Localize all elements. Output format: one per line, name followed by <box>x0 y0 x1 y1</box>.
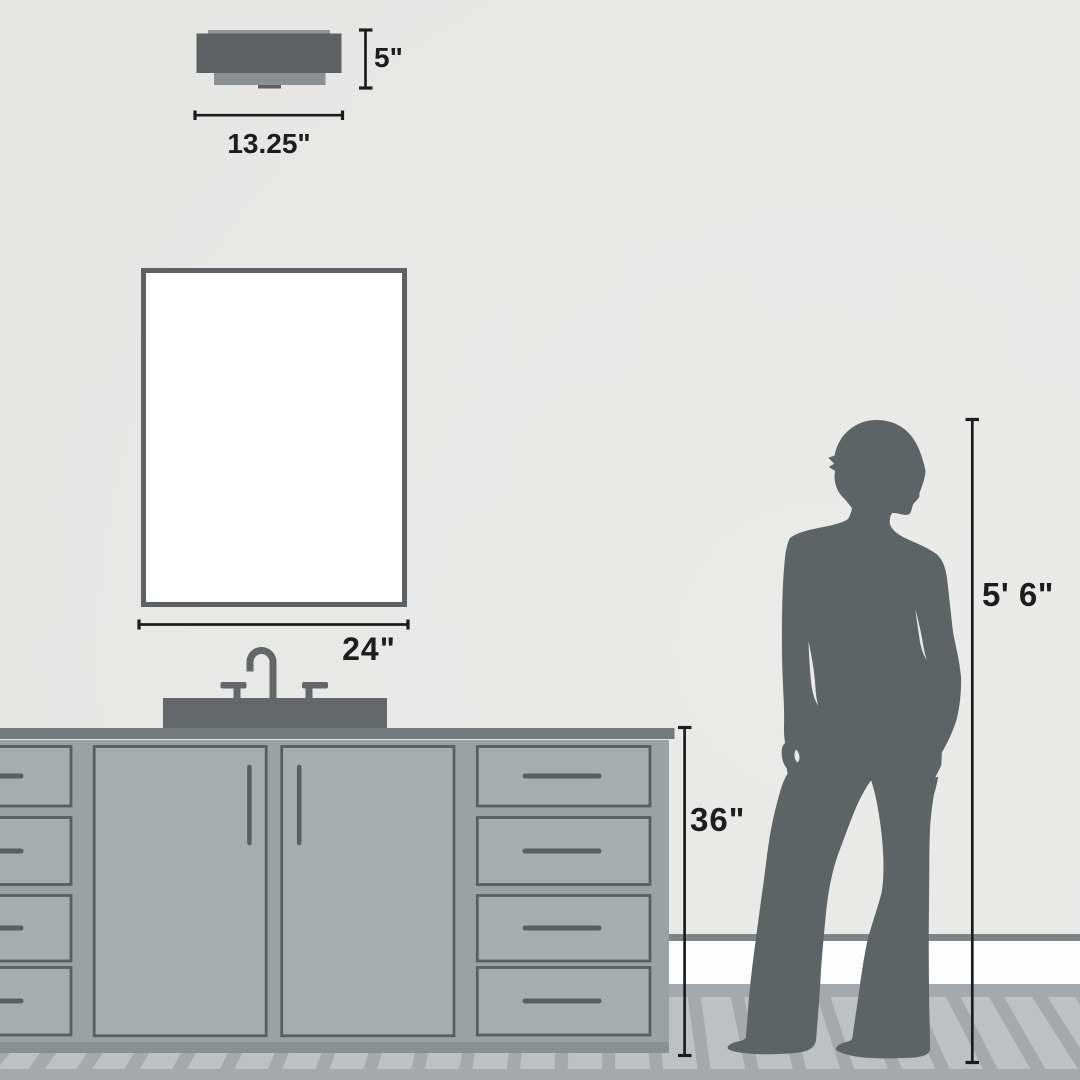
svg-text:36": 36" <box>690 801 745 838</box>
svg-text:13.25": 13.25" <box>227 128 310 159</box>
svg-text:5": 5" <box>374 42 403 73</box>
svg-text:5' 6": 5' 6" <box>982 576 1054 613</box>
svg-text:24": 24" <box>342 631 396 667</box>
